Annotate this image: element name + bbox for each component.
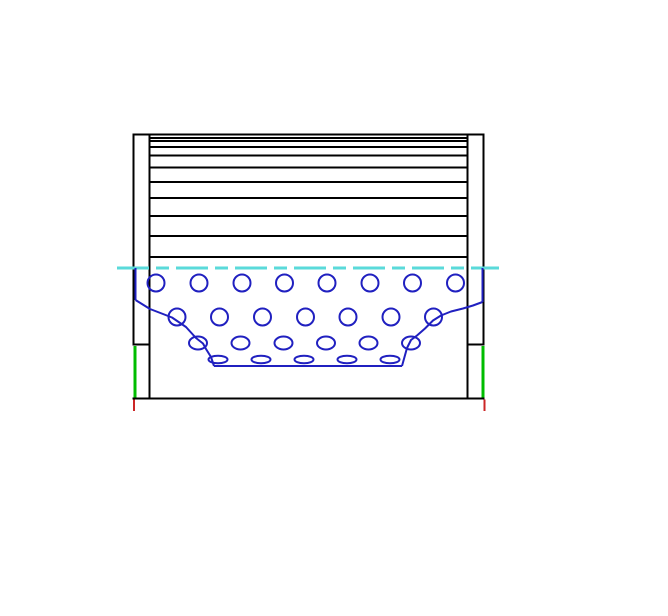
perforation-hole xyxy=(383,309,400,326)
perforation-hole xyxy=(317,337,335,350)
perforation-hole xyxy=(362,275,379,292)
perforation-hole xyxy=(275,337,293,350)
drawing-canvas xyxy=(0,0,668,616)
perforation-hole xyxy=(254,309,271,326)
perforation-hole xyxy=(404,275,421,292)
perforation-holes xyxy=(148,275,465,364)
perforation-hole xyxy=(211,309,228,326)
section-break-line-right xyxy=(402,302,483,366)
seal-lines xyxy=(135,346,483,398)
filter-element-drawing xyxy=(0,0,668,616)
perforation-hole xyxy=(360,337,378,350)
perforation-hole xyxy=(297,309,314,326)
datum-ticks xyxy=(134,400,485,412)
perforation-hole xyxy=(276,275,293,292)
perforation-hole xyxy=(232,337,250,350)
perforation-hole xyxy=(234,275,251,292)
perforation-hole xyxy=(340,309,357,326)
core-section-outline xyxy=(136,268,483,366)
perforation-hole xyxy=(319,275,336,292)
pleat-lines xyxy=(150,135,468,258)
perforation-hole xyxy=(447,275,464,292)
perforation-hole xyxy=(295,356,314,364)
perforation-hole xyxy=(191,275,208,292)
section-break-line-left xyxy=(136,300,215,366)
perforation-hole xyxy=(252,356,271,364)
perforation-hole xyxy=(402,337,420,350)
perforation-hole xyxy=(338,356,357,364)
perforation-hole xyxy=(381,356,400,364)
